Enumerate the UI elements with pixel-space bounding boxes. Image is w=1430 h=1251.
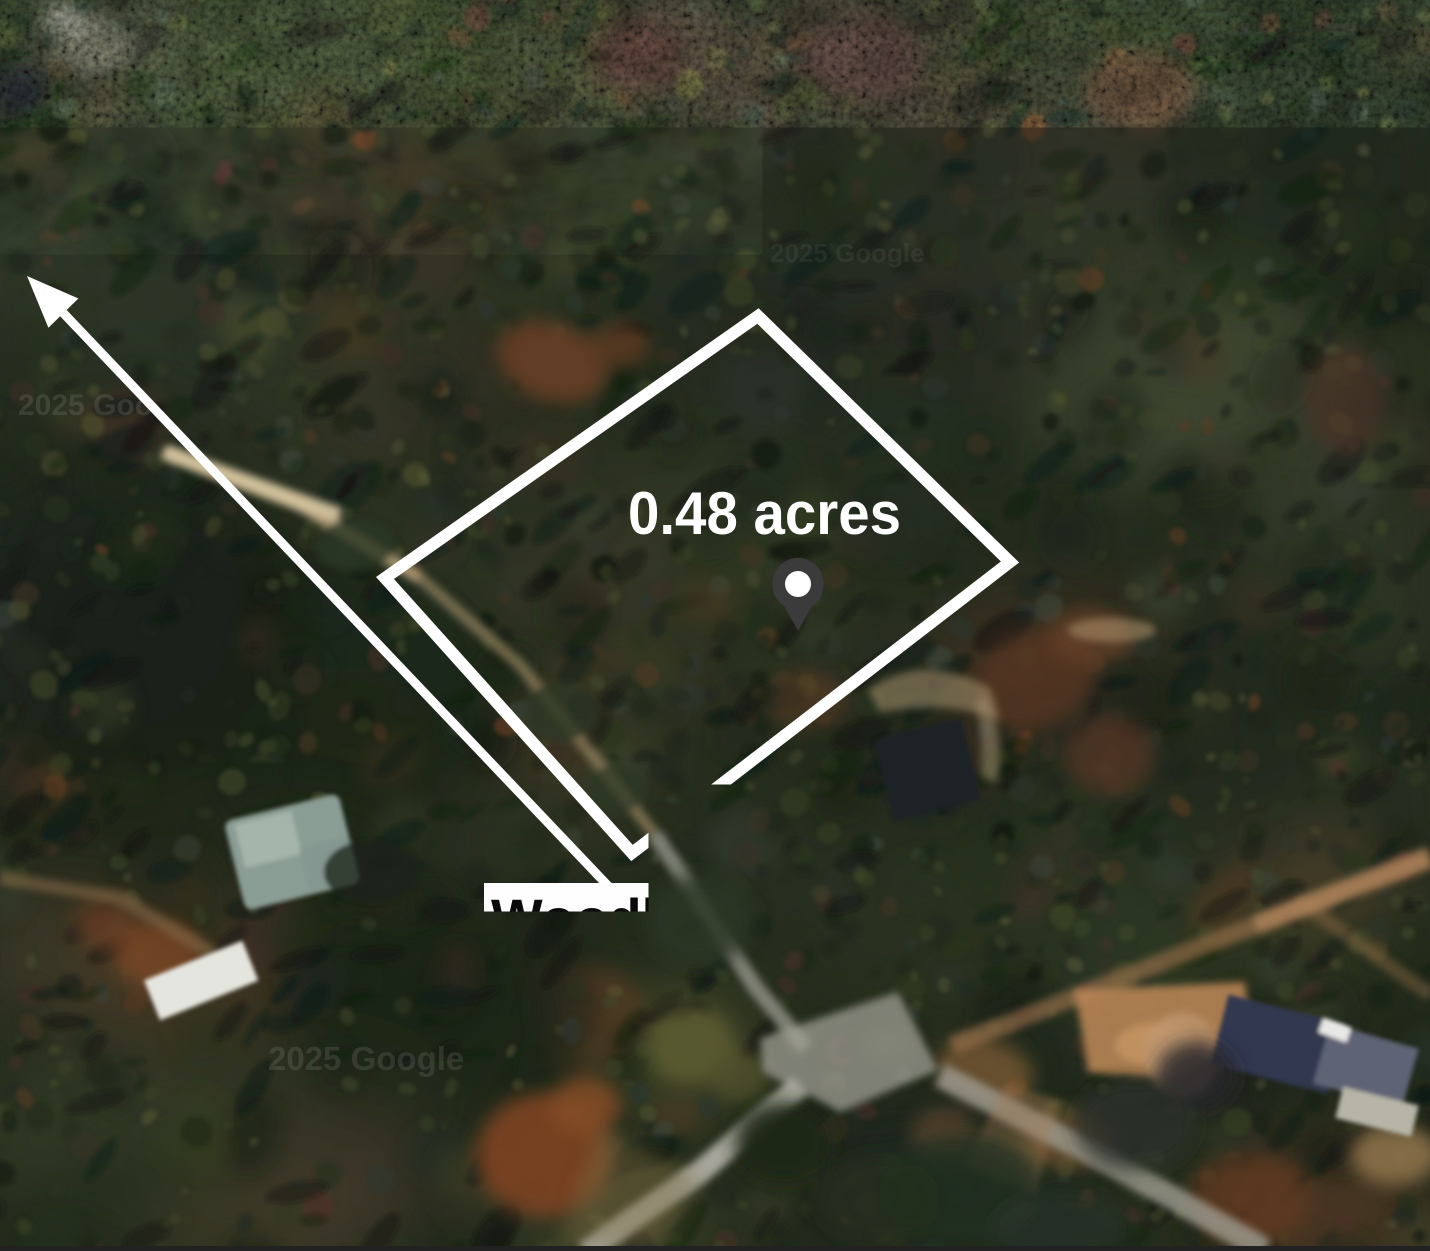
svg-text:2025 Google: 2025 Google: [268, 1040, 464, 1077]
svg-text:2025 Google: 2025 Google: [770, 238, 925, 268]
svg-text:Woodlawn Ln: Woodlawn Ln: [491, 887, 845, 950]
svg-text:Woodhaven Ln: Woodhaven Ln: [1009, 919, 1397, 982]
svg-text:2025: 2025: [1254, 1155, 1380, 1220]
svg-text:Google: Google: [13, 1195, 151, 1242]
svg-text:2025 Goo: 2025 Goo: [18, 389, 153, 422]
svg-text:0.48 acres: 0.48 acres: [628, 480, 901, 547]
svg-text:MLS: MLS: [1097, 1206, 1140, 1223]
